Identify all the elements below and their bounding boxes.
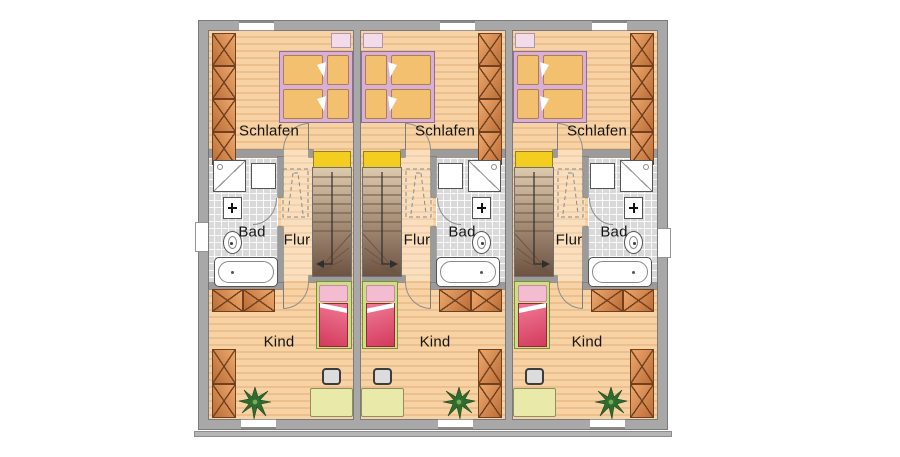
room-label-bedroom: Schlafen <box>239 124 299 139</box>
wall <box>278 227 283 283</box>
plant-icon <box>239 387 271 419</box>
shower-icon <box>620 160 653 192</box>
dresser-icon <box>439 289 502 312</box>
pillow <box>517 89 539 119</box>
dresser-icon <box>212 289 275 312</box>
duvet <box>366 303 395 347</box>
wall <box>401 150 405 157</box>
room-label-bath: Bad <box>600 225 627 240</box>
bottom-window <box>590 419 625 429</box>
sink-icon <box>472 197 491 219</box>
dashed-wardrobe-icon <box>282 168 309 218</box>
stair-landing <box>313 151 351 168</box>
sink-icon <box>624 197 643 219</box>
duvet <box>283 89 323 119</box>
bottom-eaves-line <box>195 432 671 436</box>
wardrobe-icon <box>478 33 502 165</box>
child-bed-icon <box>362 281 398 349</box>
dashed-wardrobe-icon <box>557 168 584 218</box>
child-room-door-arc <box>405 282 431 309</box>
nightstand-icon <box>331 33 351 48</box>
chair-icon <box>322 368 341 385</box>
room-label-bedroom: Schlafen <box>415 124 475 139</box>
duvet <box>283 55 323 85</box>
desk-icon <box>513 388 556 417</box>
wardrobe-icon <box>630 33 654 165</box>
bathtub-icon <box>436 257 500 287</box>
washbasin-icon <box>251 163 276 189</box>
wardrobe-icon <box>630 349 654 418</box>
room-label-child: Kind <box>572 335 603 350</box>
chair-icon <box>373 368 392 385</box>
child-room-door-arc <box>557 282 583 309</box>
top-window <box>440 21 475 31</box>
room-label-hall: Flur <box>284 233 311 248</box>
double-bed-icon <box>513 51 587 123</box>
room-label-child: Kind <box>264 335 295 350</box>
room-label-hall: Flur <box>404 233 431 248</box>
washbasin-icon <box>438 163 463 189</box>
chair-icon <box>525 368 544 385</box>
bottom-window <box>241 419 276 429</box>
duvet <box>518 303 547 347</box>
top-window <box>239 21 274 31</box>
shower-icon <box>213 160 246 192</box>
bathtub-icon <box>588 257 652 287</box>
child-bed-icon <box>514 281 550 349</box>
duvet <box>543 89 583 119</box>
pillow <box>517 55 539 85</box>
wall <box>553 150 557 157</box>
left-wall-window <box>195 222 209 252</box>
plant-icon <box>595 387 627 419</box>
dresser-icon <box>591 289 654 312</box>
duvet <box>391 89 431 119</box>
building-outline: Schlafen Bad Flur Kind <box>199 21 667 429</box>
pillow <box>365 89 387 119</box>
room-label-bedroom: Schlafen <box>567 124 627 139</box>
pillow <box>327 89 349 119</box>
stair-landing <box>363 151 401 168</box>
duvet <box>319 303 348 347</box>
duvet <box>543 55 583 85</box>
stair-landing <box>515 151 553 168</box>
room-label-bath: Bad <box>448 225 475 240</box>
staircase-icon <box>363 168 401 276</box>
sink-icon <box>223 197 242 219</box>
desk-icon <box>310 388 353 417</box>
dashed-wardrobe-icon <box>405 168 432 218</box>
staircase-icon <box>313 168 351 276</box>
house-unit-2: Schlafen Bad Flur Kind <box>361 31 505 419</box>
desk-icon <box>361 388 404 417</box>
pillow <box>327 55 349 85</box>
bottom-window <box>438 419 473 429</box>
child-bed-icon <box>316 281 352 349</box>
duvet <box>391 55 431 85</box>
child-room-door-arc <box>283 282 309 309</box>
house-unit-3: Schlafen Bad Flur Kind <box>513 31 657 419</box>
pillow <box>366 285 395 302</box>
house-unit-1: Schlafen Bad Flur Kind <box>209 31 353 419</box>
pillow <box>518 285 547 302</box>
pillow <box>319 285 348 302</box>
plant-icon <box>443 387 475 419</box>
double-bed-icon <box>279 51 353 123</box>
top-window <box>592 21 627 31</box>
bathtub-icon <box>214 257 278 287</box>
wardrobe-icon <box>212 349 236 418</box>
staircase-icon <box>515 168 553 276</box>
wardrobe-icon <box>478 349 502 418</box>
shower-icon <box>468 160 501 192</box>
wardrobe-icon <box>212 33 236 165</box>
room-label-child: Kind <box>420 335 451 350</box>
washbasin-icon <box>590 163 615 189</box>
room-label-hall: Flur <box>556 233 583 248</box>
nightstand-icon <box>515 33 535 48</box>
pillow <box>365 55 387 85</box>
nightstand-icon <box>363 33 383 48</box>
double-bed-icon <box>361 51 435 123</box>
right-wall-window <box>657 228 671 258</box>
room-label-bath: Bad <box>238 225 265 240</box>
floor-plan-canvas: Schlafen Bad Flur Kind <box>0 0 900 457</box>
